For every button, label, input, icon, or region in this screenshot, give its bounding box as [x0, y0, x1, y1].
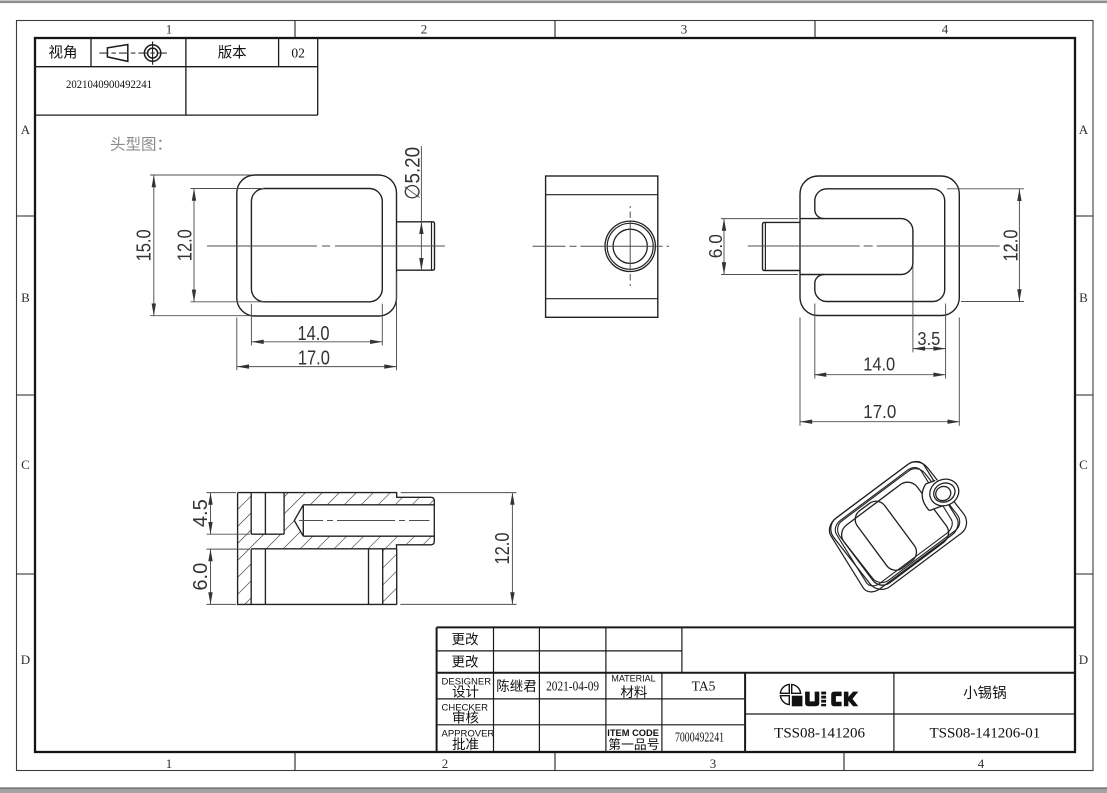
svg-text:6.0: 6.0	[190, 563, 212, 591]
svg-text:TSS08-141206: TSS08-141206	[774, 726, 865, 742]
svg-text:17.0: 17.0	[863, 402, 896, 422]
svg-text:TSS08-141206-01: TSS08-141206-01	[929, 726, 1040, 742]
svg-text:头型图：: 头型图：	[110, 136, 172, 154]
svg-text:第一品号: 第一品号	[608, 738, 659, 752]
svg-text:2021-04-09: 2021-04-09	[546, 679, 599, 694]
svg-text:3: 3	[710, 756, 717, 771]
svg-text:陈继君: 陈继君	[496, 678, 537, 694]
svg-text:B: B	[21, 290, 30, 305]
svg-text:1: 1	[166, 22, 173, 37]
svg-text:MATERIAL: MATERIAL	[611, 674, 655, 684]
svg-text:1: 1	[166, 756, 173, 771]
svg-text:设计: 设计	[452, 685, 479, 700]
svg-text:视角: 视角	[49, 45, 78, 62]
svg-text:2: 2	[442, 756, 449, 771]
svg-text:12.0: 12.0	[492, 533, 514, 565]
svg-text:版本: 版本	[218, 45, 247, 62]
svg-text:更改: 更改	[452, 632, 479, 647]
svg-text:小锡锅: 小锡锅	[963, 685, 1007, 702]
svg-text:D: D	[21, 652, 30, 667]
svg-text:3.5: 3.5	[917, 329, 940, 349]
svg-text:15.0: 15.0	[134, 229, 156, 261]
svg-text:6.0: 6.0	[706, 234, 726, 258]
svg-text:审核: 审核	[452, 711, 479, 726]
svg-text:C: C	[21, 457, 30, 472]
svg-text:ITEM CODE: ITEM CODE	[607, 728, 659, 738]
svg-text:A: A	[21, 122, 31, 137]
svg-text:TA5: TA5	[692, 679, 716, 694]
svg-text:2021040900492241: 2021040900492241	[66, 79, 152, 91]
svg-text:7000492241: 7000492241	[675, 730, 724, 745]
svg-text:02: 02	[291, 46, 305, 61]
svg-text:3: 3	[681, 22, 688, 37]
svg-text:A: A	[1079, 122, 1089, 137]
svg-text:材料: 材料	[620, 685, 648, 700]
svg-text:批准: 批准	[452, 737, 479, 752]
svg-text:更改: 更改	[452, 655, 479, 670]
svg-text:2: 2	[421, 22, 428, 37]
svg-text:C: C	[1079, 457, 1088, 472]
svg-text:12.0: 12.0	[1000, 230, 1022, 262]
svg-text:17.0: 17.0	[298, 348, 330, 370]
svg-text:4: 4	[942, 22, 949, 37]
svg-text:12.0: 12.0	[174, 229, 196, 261]
svg-text:D: D	[1079, 652, 1088, 667]
svg-text:14.0: 14.0	[298, 323, 330, 345]
svg-text:∅5.20: ∅5.20	[402, 147, 425, 200]
svg-text:B: B	[1079, 290, 1088, 305]
svg-text:14.0: 14.0	[863, 355, 895, 375]
svg-text:4: 4	[978, 756, 985, 771]
svg-text:4.5: 4.5	[190, 499, 212, 527]
